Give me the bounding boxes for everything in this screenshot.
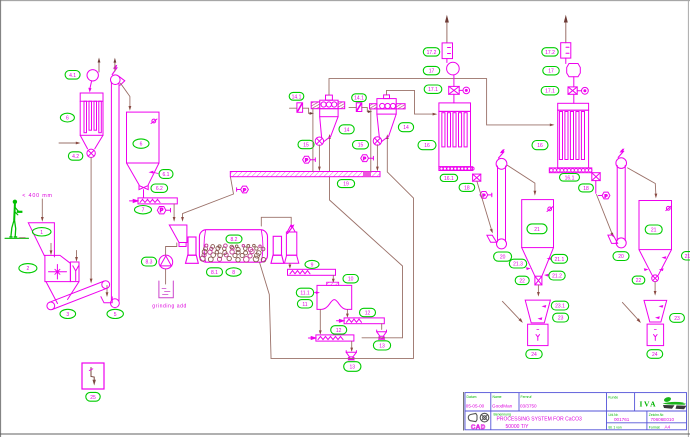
- svg-text:18: 18: [464, 185, 470, 191]
- svg-text:24: 24: [652, 352, 658, 358]
- svg-text:grinding add: grinding add: [152, 303, 187, 309]
- svg-text:17.2: 17.2: [427, 50, 437, 56]
- svg-text:16: 16: [537, 143, 543, 149]
- svg-text:22: 22: [636, 278, 642, 284]
- svg-text:7: 7: [142, 208, 145, 214]
- svg-text:Fernruf: Fernruf: [521, 395, 532, 399]
- svg-text:16.1: 16.1: [444, 176, 454, 182]
- svg-text:20: 20: [500, 255, 506, 261]
- svg-text:Name: Name: [493, 395, 502, 399]
- svg-text:A4: A4: [665, 425, 671, 430]
- svg-text:8.1: 8.1: [211, 270, 218, 276]
- svg-text:6: 6: [140, 142, 143, 148]
- svg-text:14: 14: [344, 127, 350, 133]
- svg-text:23.1: 23.1: [555, 304, 565, 310]
- svg-text:Kunde: Kunde: [608, 396, 618, 400]
- svg-text:9: 9: [311, 262, 314, 268]
- svg-text:PROCESSING SYSTEM FOR CaCO3: PROCESSING SYSTEM FOR CaCO3: [497, 416, 583, 422]
- svg-text:4.2: 4.2: [72, 154, 79, 160]
- svg-text:21: 21: [534, 227, 540, 233]
- svg-text:GoodMan: GoodMan: [492, 404, 513, 409]
- svg-text:22: 22: [519, 278, 525, 284]
- svg-text:17.1: 17.1: [428, 87, 438, 93]
- svg-text:P: P: [305, 158, 308, 163]
- svg-text:15: 15: [358, 143, 364, 149]
- svg-text:4.1: 4.1: [69, 73, 76, 79]
- svg-text:17: 17: [548, 69, 554, 75]
- svg-text:001761: 001761: [614, 417, 630, 422]
- svg-text:P: P: [243, 187, 246, 192]
- svg-text:P: P: [363, 156, 366, 161]
- svg-text:23: 23: [558, 316, 564, 322]
- svg-text:18: 18: [583, 186, 589, 192]
- svg-text:24: 24: [531, 352, 537, 358]
- svg-text:Bl. 1 von: Bl. 1 von: [609, 425, 622, 429]
- svg-text:10: 10: [348, 277, 354, 283]
- svg-text:20: 20: [618, 254, 624, 260]
- svg-text:21.3: 21.3: [513, 262, 523, 268]
- svg-text:< 400 mm: < 400 mm: [22, 193, 53, 199]
- svg-text:CAD: CAD: [471, 424, 486, 431]
- svg-text:21.2: 21.2: [552, 274, 562, 280]
- svg-text:05-05-00: 05-05-00: [466, 404, 485, 409]
- svg-text:11.1: 11.1: [300, 291, 310, 297]
- svg-text:6: 6: [66, 116, 69, 122]
- svg-text:21.1: 21.1: [555, 257, 565, 263]
- svg-text:3: 3: [66, 312, 69, 318]
- svg-text:15: 15: [303, 143, 309, 149]
- svg-text:1: 1: [40, 230, 43, 236]
- svg-text:21: 21: [651, 228, 657, 234]
- svg-text:IVA: IVA: [640, 400, 658, 409]
- svg-text:6.2: 6.2: [156, 186, 163, 192]
- svg-text:12: 12: [365, 311, 371, 317]
- svg-text:23: 23: [674, 316, 680, 322]
- svg-text:11: 11: [302, 302, 307, 308]
- svg-text:03/3750: 03/3750: [520, 404, 537, 409]
- svg-text:13: 13: [350, 365, 356, 371]
- svg-text:50000 T/Y: 50000 T/Y: [506, 424, 530, 430]
- svg-text:5: 5: [114, 312, 117, 318]
- svg-text:16.1: 16.1: [565, 175, 575, 181]
- svg-text:19: 19: [343, 182, 349, 188]
- svg-text:14.1: 14.1: [354, 96, 364, 102]
- svg-text:8: 8: [232, 270, 235, 276]
- svg-text:Format: Format: [649, 425, 660, 429]
- svg-text:70606E010: 70606E010: [651, 417, 675, 422]
- svg-text:21.1: 21.1: [685, 254, 690, 260]
- svg-text:8.3: 8.3: [146, 260, 153, 266]
- svg-text:13: 13: [379, 343, 385, 349]
- svg-text:8.2: 8.2: [231, 237, 238, 243]
- svg-text:25: 25: [90, 395, 96, 401]
- svg-text:14.1: 14.1: [292, 94, 302, 100]
- svg-text:P: P: [482, 193, 485, 198]
- svg-text:2: 2: [27, 266, 30, 272]
- svg-text:17.2: 17.2: [545, 50, 555, 56]
- svg-text:Datum: Datum: [467, 395, 477, 399]
- svg-text:6.1: 6.1: [163, 172, 170, 178]
- svg-text:14: 14: [403, 125, 409, 131]
- svg-text:17: 17: [429, 69, 435, 75]
- svg-text:17.1: 17.1: [545, 89, 555, 95]
- svg-text:16: 16: [424, 143, 430, 149]
- svg-text:P: P: [604, 193, 607, 198]
- svg-text:12: 12: [336, 328, 342, 334]
